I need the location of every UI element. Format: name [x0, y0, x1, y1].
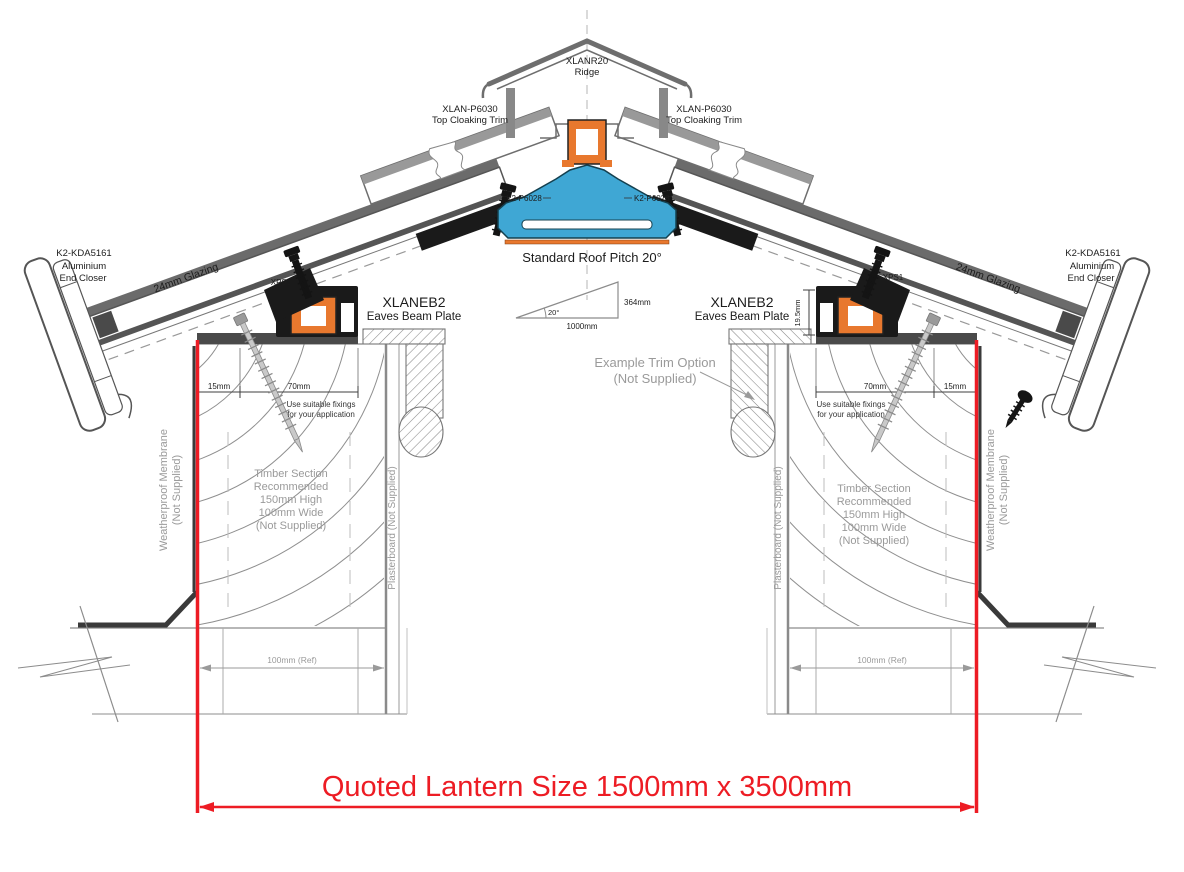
- xps1-label-left: XPS1: [271, 278, 292, 287]
- timber-note-right: Timber Section Recommended 150mm High 10…: [837, 483, 912, 547]
- beam-upstand-dimension: [803, 290, 815, 335]
- pitch-angle-label: 20°: [548, 308, 559, 317]
- left-side-assembly: [0, 0, 590, 750]
- membrane-label-line2-left: (Not Supplied): [171, 455, 183, 525]
- lantern-cross-section-svg: XLANR20 Ridge XLAN-P6030 Top Cloaking Tr…: [0, 0, 1184, 872]
- weatherproof-membrane-line: [78, 592, 197, 625]
- eaves-beam-name-label-right: Eaves Beam Plate: [695, 311, 790, 323]
- fixings-note-line1-right: Use suitable fixings: [817, 400, 886, 409]
- end-closer-line3-left: End Closer: [60, 273, 107, 284]
- timber-note-line: 150mm High: [843, 509, 905, 521]
- end-closer-line3-right: End Closer: [1068, 273, 1115, 284]
- top-cloaking-name-label-right: Top Cloaking Trim: [666, 115, 742, 126]
- pitch-rise-label: 364mm: [624, 298, 651, 307]
- ridge-bolt-part-label-right: K2-P6028: [634, 194, 670, 203]
- dim-100-ref-left: 100mm (Ref): [267, 655, 317, 665]
- timber-note-line: Timber Section: [837, 483, 911, 495]
- ridge-orange-foot: [600, 160, 612, 167]
- spare-screw-icon: [999, 388, 1035, 433]
- membrane-label-line1-right: Weatherproof Membrane: [985, 429, 997, 551]
- timber-note-line: (Not Supplied): [256, 520, 326, 532]
- ridge-profile-slot: [522, 220, 652, 229]
- timber-note-line: Timber Section: [254, 468, 328, 480]
- beam-upstand-dim-label: 19.5mm: [793, 299, 802, 326]
- timber-note-line: Recommended: [837, 496, 912, 508]
- dim-70-left: 70mm: [288, 382, 311, 391]
- xps1-label-right: XPS1: [883, 273, 904, 282]
- end-closer-line2-right: Aluminium: [1070, 261, 1114, 272]
- eaves-thermal-break-core: [301, 306, 326, 326]
- timber-note-line: 100mm Wide: [259, 507, 324, 519]
- ridge-thermal-break-core: [576, 129, 598, 155]
- timber-note-line: 150mm High: [260, 494, 322, 506]
- roof-pitch-title: Standard Roof Pitch 20°: [522, 250, 662, 265]
- quoted-size-arrow-right: [960, 802, 975, 812]
- ridge-gasket-strip: [505, 240, 669, 244]
- timber-note-line: (Not Supplied): [839, 535, 909, 547]
- top-cloaking-part-label-left: XLAN-P6030: [442, 104, 497, 115]
- roof-pitch-triangle: [516, 282, 618, 318]
- membrane-label-line1-left: Weatherproof Membrane: [158, 429, 170, 551]
- dim-15-left: 15mm: [208, 382, 231, 391]
- eaves-beam-name-label-left: Eaves Beam Plate: [367, 311, 462, 323]
- dim-arrow: [373, 665, 384, 672]
- eaves-frame-pocket: [341, 303, 354, 332]
- plasterboard-label-right: Plasterboard (Not Supplied): [773, 466, 784, 589]
- end-closer-part-label-right: K2-KDA5161: [1065, 248, 1120, 259]
- trim-option-line2: (Not Supplied): [613, 371, 696, 386]
- timber-note-left: Timber Section Recommended 150mm High 10…: [254, 468, 329, 532]
- quoted-size-arrow-left: [199, 802, 214, 812]
- fixings-note-line2-left: for your application: [287, 410, 355, 419]
- trim-option-line1: Example Trim Option: [594, 355, 715, 370]
- ridge-cap-leg: [506, 88, 515, 138]
- end-closer-line2-left: Aluminium: [62, 261, 106, 272]
- top-cloaking-part-label-right: XLAN-P6030: [676, 104, 731, 115]
- quoted-lantern-size-text: Quoted Lantern Size 1500mm x 3500mm: [322, 771, 852, 803]
- ridge-part-label: XLANR20: [566, 56, 608, 67]
- plasterboard-label-left: Plasterboard (Not Supplied): [387, 466, 398, 589]
- ridge-orange-foot: [562, 160, 574, 167]
- dim-100-ref-right: 100mm (Ref): [857, 655, 907, 665]
- ridge-name-label: Ridge: [575, 67, 600, 78]
- dim-arrow: [200, 665, 211, 672]
- membrane-label-line2-right: (Not Supplied): [998, 455, 1010, 525]
- timber-note-line: 100mm Wide: [842, 522, 907, 534]
- eaves-beam-part-label-right: XLANEB2: [710, 294, 773, 310]
- fixings-note-line1-left: Use suitable fixings: [287, 400, 356, 409]
- roof-lantern-section-drawing: XLANR20 Ridge XLAN-P6030 Top Cloaking Tr…: [0, 0, 1184, 872]
- end-closer-part-label-left: K2-KDA5161: [56, 248, 111, 259]
- dim-15-right: 15mm: [944, 382, 967, 391]
- eaves-beam-part-label-left: XLANEB2: [382, 294, 445, 310]
- fixings-note-line2-right: for your application: [817, 410, 885, 419]
- timber-note-line: Recommended: [254, 481, 329, 493]
- dim-70-right: 70mm: [864, 382, 887, 391]
- top-cloaking-name-label-left: Top Cloaking Trim: [432, 115, 508, 126]
- break-symbol: [18, 657, 130, 677]
- ridge-bolt-part-label-left: K2-P6028: [506, 194, 542, 203]
- pitch-base-label: 1000mm: [566, 322, 597, 331]
